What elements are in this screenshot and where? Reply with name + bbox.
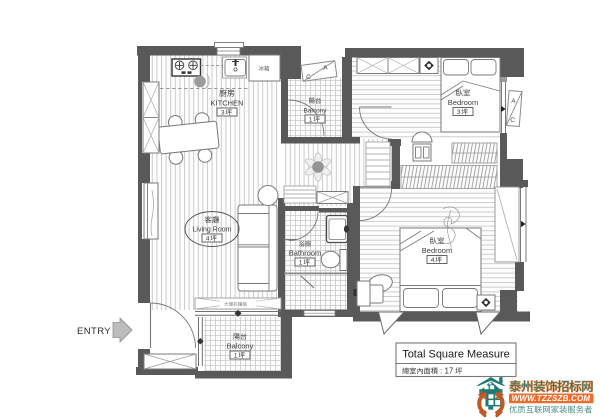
svg-text:: 17: : 17 <box>440 367 454 376</box>
svg-text:Total Square Measure: Total Square Measure <box>402 349 510 361</box>
svg-text:Living Room: Living Room <box>193 227 232 234</box>
svg-text:WWW.TZZSZB.COM: WWW.TZZSZB.COM <box>512 394 591 403</box>
svg-text:4: 4 <box>206 236 210 243</box>
svg-text:Bathroom: Bathroom <box>289 249 322 258</box>
svg-text:KITCHEN: KITCHEN <box>211 99 244 108</box>
svg-text:4: 4 <box>431 257 435 264</box>
svg-text:Balcony: Balcony <box>227 342 254 351</box>
svg-text:ENTRY: ENTRY <box>77 326 111 337</box>
svg-text:1: 1 <box>299 260 303 267</box>
svg-text:3: 3 <box>457 109 461 116</box>
svg-text:1: 1 <box>234 353 238 360</box>
svg-text:3: 3 <box>221 110 225 117</box>
svg-text:1: 1 <box>309 117 313 124</box>
svg-text:Bedroom: Bedroom <box>448 98 478 107</box>
svg-text:Bedroom: Bedroom <box>422 246 452 255</box>
svg-text:Balcony: Balcony <box>303 108 327 115</box>
svg-text:C: C <box>510 117 516 124</box>
